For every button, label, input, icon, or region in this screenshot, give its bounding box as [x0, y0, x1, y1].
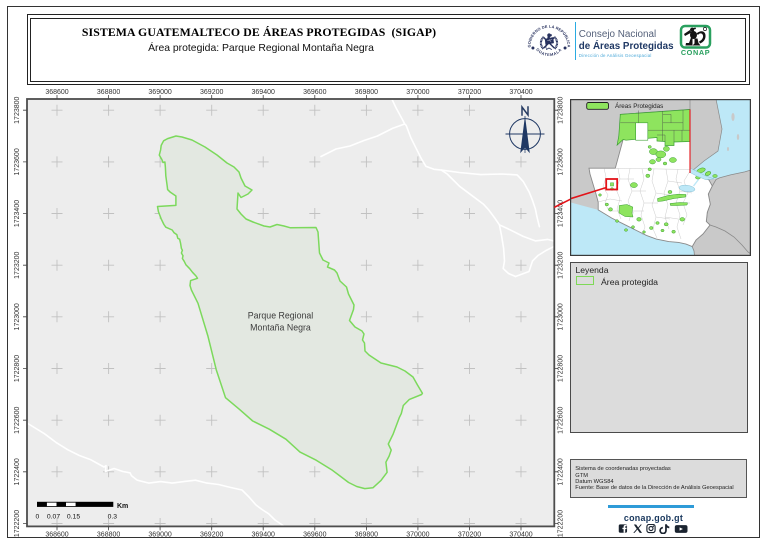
svg-text:0.15: 0.15 — [67, 514, 80, 521]
svg-text:369200: 369200 — [200, 89, 223, 96]
svg-text:369600: 369600 — [303, 89, 326, 96]
svg-text:368600: 368600 — [45, 532, 68, 539]
svg-text:368800: 368800 — [97, 89, 120, 96]
svg-text:1723400: 1723400 — [14, 200, 21, 227]
svg-text:Montaña Negra: Montaña Negra — [250, 323, 311, 333]
svg-text:1722400: 1722400 — [14, 458, 21, 485]
svg-text:368800: 368800 — [97, 532, 120, 539]
svg-text:1723200: 1723200 — [558, 251, 565, 278]
svg-text:368600: 368600 — [45, 89, 68, 96]
svg-text:1722800: 1722800 — [14, 355, 21, 382]
svg-text:1723200: 1723200 — [14, 251, 21, 278]
svg-text:1723600: 1723600 — [558, 148, 565, 175]
svg-text:1722200: 1722200 — [558, 510, 565, 537]
svg-text:370200: 370200 — [458, 532, 481, 539]
svg-text:1722400: 1722400 — [558, 458, 565, 485]
svg-text:1722200: 1722200 — [14, 510, 21, 537]
svg-text:1723800: 1723800 — [14, 96, 21, 123]
svg-text:0.07: 0.07 — [47, 514, 60, 521]
svg-text:Parque Regional: Parque Regional — [248, 311, 314, 321]
svg-text:Km: Km — [117, 503, 128, 510]
svg-text:1723000: 1723000 — [14, 303, 21, 330]
svg-text:1722600: 1722600 — [14, 406, 21, 433]
svg-text:369800: 369800 — [355, 532, 378, 539]
svg-text:369200: 369200 — [200, 532, 223, 539]
svg-text:369800: 369800 — [355, 89, 378, 96]
svg-text:CONAP: CONAP — [681, 48, 710, 56]
svg-text:369600: 369600 — [303, 532, 326, 539]
svg-text:1723600: 1723600 — [14, 148, 21, 175]
svg-text:370000: 370000 — [406, 532, 429, 539]
svg-text:1723000: 1723000 — [558, 303, 565, 330]
svg-text:0: 0 — [36, 514, 40, 521]
svg-text:370000: 370000 — [406, 89, 429, 96]
svg-text:Áreas Protegidas: Áreas Protegidas — [615, 101, 663, 110]
svg-text:370400: 370400 — [509, 89, 532, 96]
svg-text:370200: 370200 — [458, 89, 481, 96]
svg-text:369000: 369000 — [148, 532, 171, 539]
svg-text:369000: 369000 — [148, 89, 171, 96]
svg-text:1722600: 1722600 — [558, 406, 565, 433]
svg-text:369400: 369400 — [252, 89, 275, 96]
svg-text:370400: 370400 — [509, 532, 532, 539]
svg-text:0.3: 0.3 — [108, 514, 118, 521]
svg-text:1723800: 1723800 — [558, 96, 565, 123]
svg-text:1722800: 1722800 — [558, 355, 565, 382]
svg-text:369400: 369400 — [252, 532, 275, 539]
